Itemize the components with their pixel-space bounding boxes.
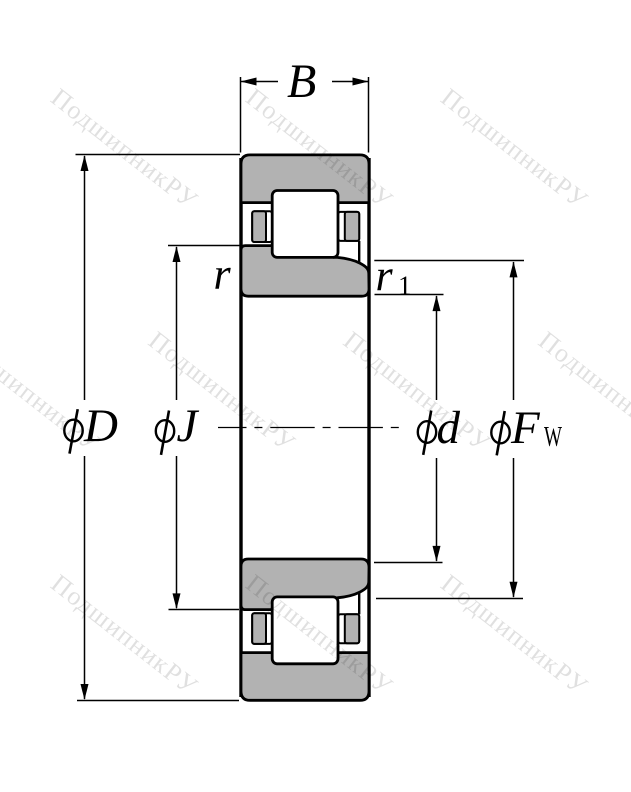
svg-text:B: B	[287, 55, 316, 108]
svg-text:r: r	[214, 250, 232, 299]
svg-text:W: W	[544, 422, 562, 453]
svg-text:1: 1	[398, 271, 412, 301]
svg-text:J: J	[177, 400, 200, 452]
svg-text:r: r	[376, 251, 394, 300]
svg-text:F: F	[510, 402, 541, 454]
